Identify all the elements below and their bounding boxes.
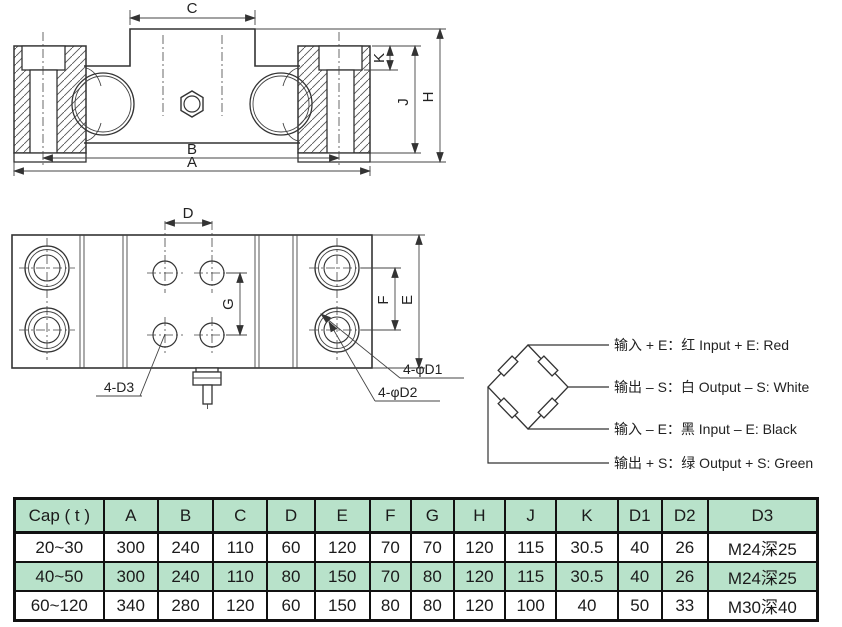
spec-row-20-30: 20~30 300 240 110 60 120 70 70 120 115 3… <box>15 533 818 563</box>
spec-cell: 115 <box>505 562 556 591</box>
hex-plug <box>181 91 203 117</box>
spec-cell: 120 <box>454 591 505 621</box>
col-header-h: H <box>454 499 505 533</box>
col-header-d1: D1 <box>618 499 662 533</box>
plan-body <box>12 235 372 368</box>
col-header-a: A <box>104 499 158 533</box>
spec-cell: 70 <box>411 533 454 563</box>
spec-cell: 40 <box>618 533 662 563</box>
spec-table: Cap ( t ) A B C D E F G H J K D1 D2 D3 <box>13 497 819 622</box>
callout-label-4-D3: 4-D3 <box>104 379 135 395</box>
cable-gland <box>193 368 221 409</box>
spec-cell: 110 <box>213 533 267 563</box>
spec-cell: 70 <box>370 533 411 563</box>
wiring-bridge-diagram: 输入 + E：红 Input + E: Red 输出 – S：白 Output … <box>482 328 842 478</box>
col-header-d3: D3 <box>708 499 818 533</box>
spec-cell: 40 <box>556 591 617 621</box>
spec-table-header-row: Cap ( t ) A B C D E F G H J K D1 D2 D3 <box>15 499 818 533</box>
bolt-head-slot <box>22 46 65 70</box>
spec-cell: 60 <box>267 591 314 621</box>
dim-label-J: J <box>395 98 412 106</box>
spec-cell: 340 <box>104 591 158 621</box>
dim-label-A: A <box>187 154 197 171</box>
col-header-cap: Cap ( t ) <box>15 499 104 533</box>
spec-cell: 26 <box>662 533 708 563</box>
spec-cell: 120 <box>315 533 370 563</box>
dim-label-H: H <box>420 92 437 103</box>
wire-label-input-minus: 输入 – E：黑 Input – E: Black <box>614 421 798 437</box>
spec-cell: 150 <box>315 591 370 621</box>
callout-label-4-phiD2: 4-φD2 <box>378 384 418 400</box>
col-header-e: E <box>315 499 370 533</box>
spec-cell: 150 <box>315 562 370 591</box>
wire-label-input-plus: 输入 + E：红 Input + E: Red <box>614 337 789 353</box>
spec-cell: M24深25 <box>708 533 818 563</box>
spec-cell: 100 <box>505 591 556 621</box>
spec-cell: 40~50 <box>15 562 104 591</box>
spec-cell: 120 <box>454 562 505 591</box>
col-header-c: C <box>213 499 267 533</box>
spec-cell: 80 <box>411 591 454 621</box>
col-header-j: J <box>505 499 556 533</box>
spec-cell: 300 <box>104 562 158 591</box>
bolt-head-slot <box>319 46 362 70</box>
spec-cell: 40 <box>618 562 662 591</box>
spec-row-60-120: 60~120 340 280 120 60 150 80 80 120 100 … <box>15 591 818 621</box>
front-section-view-drawing: C K J H B <box>0 0 452 196</box>
bolt-shaft-slot <box>30 70 57 153</box>
col-header-f: F <box>370 499 411 533</box>
spec-cell: 80 <box>370 591 411 621</box>
dim-label-C: C <box>187 0 198 17</box>
col-header-g: G <box>411 499 454 533</box>
spec-cell: 280 <box>158 591 213 621</box>
dim-D: D <box>165 205 212 223</box>
spec-cell: 30.5 <box>556 562 617 591</box>
spec-table-container: Cap ( t ) A B C D E F G H J K D1 D2 D3 <box>13 497 819 622</box>
spec-cell: 80 <box>411 562 454 591</box>
spec-cell: 240 <box>158 562 213 591</box>
spec-cell: 33 <box>662 591 708 621</box>
foot <box>298 153 370 162</box>
spec-cell: 70 <box>370 562 411 591</box>
plan-view-drawing: D G F E 4-D3 <box>0 208 470 443</box>
spec-cell: M24深25 <box>708 562 818 591</box>
spec-cell: 110 <box>213 562 267 591</box>
loadcell-body-outline <box>84 29 300 143</box>
spec-row-40-50: 40~50 300 240 110 80 150 70 80 120 115 3… <box>15 562 818 591</box>
spec-cell: M30深40 <box>708 591 818 621</box>
dim-label-G: G <box>220 298 237 310</box>
dim-C: C <box>130 0 255 25</box>
col-header-k: K <box>556 499 617 533</box>
col-header-b: B <box>158 499 213 533</box>
spec-cell: 115 <box>505 533 556 563</box>
spec-sheet: C K J H B <box>0 0 842 627</box>
spec-cell: 300 <box>104 533 158 563</box>
spec-cell: 60~120 <box>15 591 104 621</box>
bolt-shaft-slot <box>327 70 354 153</box>
spec-cell: 50 <box>618 591 662 621</box>
foot <box>14 153 86 162</box>
col-header-d: D <box>267 499 314 533</box>
spec-cell: 26 <box>662 562 708 591</box>
dim-label-E: E <box>399 295 416 305</box>
spec-cell: 20~30 <box>15 533 104 563</box>
spec-cell: 120 <box>213 591 267 621</box>
strain-gauge-resistors <box>498 356 558 418</box>
wire-label-output-minus: 输出 – S：白 Output – S: White <box>614 379 810 395</box>
callout-label-4-phiD1: 4-φD1 <box>403 361 443 377</box>
dim-label-F: F <box>375 295 392 304</box>
wire-label-output-plus: 输出 + S：绿 Output + S: Green <box>614 455 813 471</box>
spec-cell: 60 <box>267 533 314 563</box>
spec-cell: 120 <box>454 533 505 563</box>
dim-label-K: K <box>371 53 388 63</box>
spec-cell: 30.5 <box>556 533 617 563</box>
spec-cell: 240 <box>158 533 213 563</box>
bridge-diamond <box>488 345 568 429</box>
col-header-d2: D2 <box>662 499 708 533</box>
spec-cell: 80 <box>267 562 314 591</box>
dim-label-D: D <box>183 205 194 222</box>
